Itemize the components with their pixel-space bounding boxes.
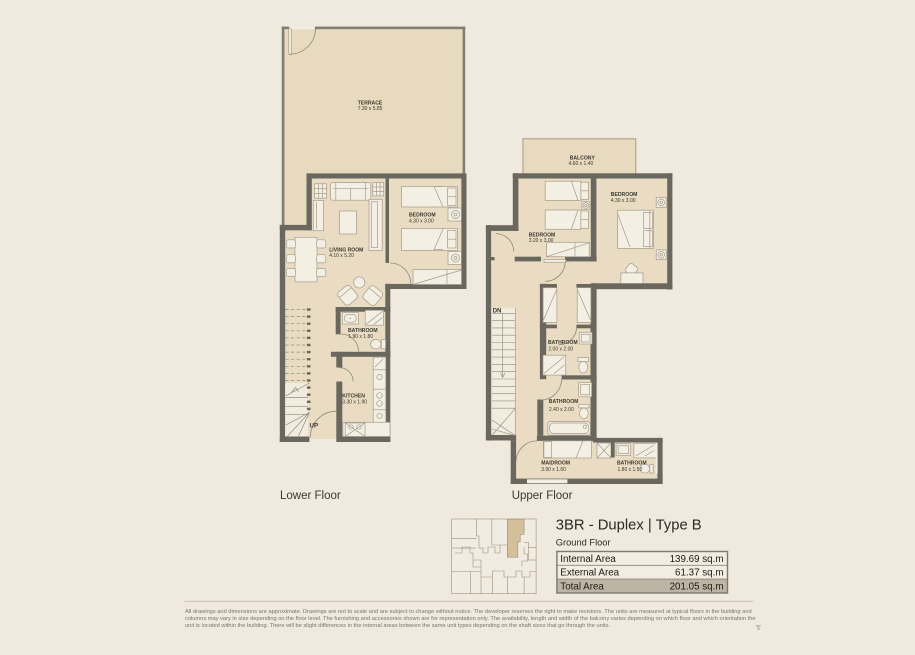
svg-text:1.90 x 1.80: 1.90 x 1.80: [348, 334, 373, 340]
svg-text:4.30 x 3.00: 4.30 x 3.00: [611, 198, 636, 204]
svg-text:External Area: External Area: [560, 568, 619, 579]
svg-text:3.20 x 3.00: 3.20 x 3.00: [529, 238, 554, 244]
svg-text:4.60 x 1.40: 4.60 x 1.40: [569, 161, 594, 167]
svg-text:unit is located within the bui: unit is located within the building. The…: [185, 623, 610, 629]
svg-text:BATHROOM: BATHROOM: [548, 340, 578, 346]
svg-text:3.30 x 1.90: 3.30 x 1.90: [342, 400, 367, 406]
svg-text:4.30 x 3.00: 4.30 x 3.00: [409, 218, 434, 224]
svg-text:MAIDROOM: MAIDROOM: [541, 461, 570, 467]
svg-text:Total Area: Total Area: [560, 581, 604, 592]
svg-text:201.05 sq.m: 201.05 sq.m: [670, 581, 724, 592]
svg-text:Internal Area: Internal Area: [560, 554, 616, 565]
svg-text:BATHROOM: BATHROOM: [549, 399, 579, 405]
svg-text:2.40 x 2.00: 2.40 x 2.00: [549, 407, 574, 413]
svg-text:7.30 x 5.85: 7.30 x 5.85: [358, 106, 383, 112]
svg-text:1.80 x 1.50: 1.80 x 1.50: [618, 467, 643, 473]
svg-text:Lower Floor: Lower Floor: [280, 490, 341, 502]
svg-text:DN: DN: [493, 308, 502, 315]
svg-text:KITCHEN: KITCHEN: [342, 394, 365, 400]
svg-text:Ground Floor: Ground Floor: [556, 538, 611, 548]
svg-text:All drawings and dimensions ar: All drawings and dimensions are approxim…: [185, 609, 752, 615]
svg-text:3BR - Duplex | Type B: 3BR - Duplex | Type B: [556, 518, 702, 534]
svg-text:BATHROOM: BATHROOM: [617, 461, 647, 467]
svg-text:Upper Floor: Upper Floor: [512, 490, 573, 502]
svg-text:columns may vary in size depen: columns may vary in size depending on th…: [185, 616, 756, 622]
svg-text:3.90 x 1.60: 3.90 x 1.60: [541, 467, 566, 473]
svg-text:61.37 sq.m: 61.37 sq.m: [675, 568, 723, 579]
svg-text:5: 5: [757, 626, 760, 632]
svg-text:2.00 x 2.00: 2.00 x 2.00: [548, 347, 573, 353]
svg-text:4.10 x 5.20: 4.10 x 5.20: [329, 253, 354, 259]
svg-text:139.69 sq.m: 139.69 sq.m: [670, 554, 724, 565]
svg-text:UP: UP: [310, 423, 319, 430]
